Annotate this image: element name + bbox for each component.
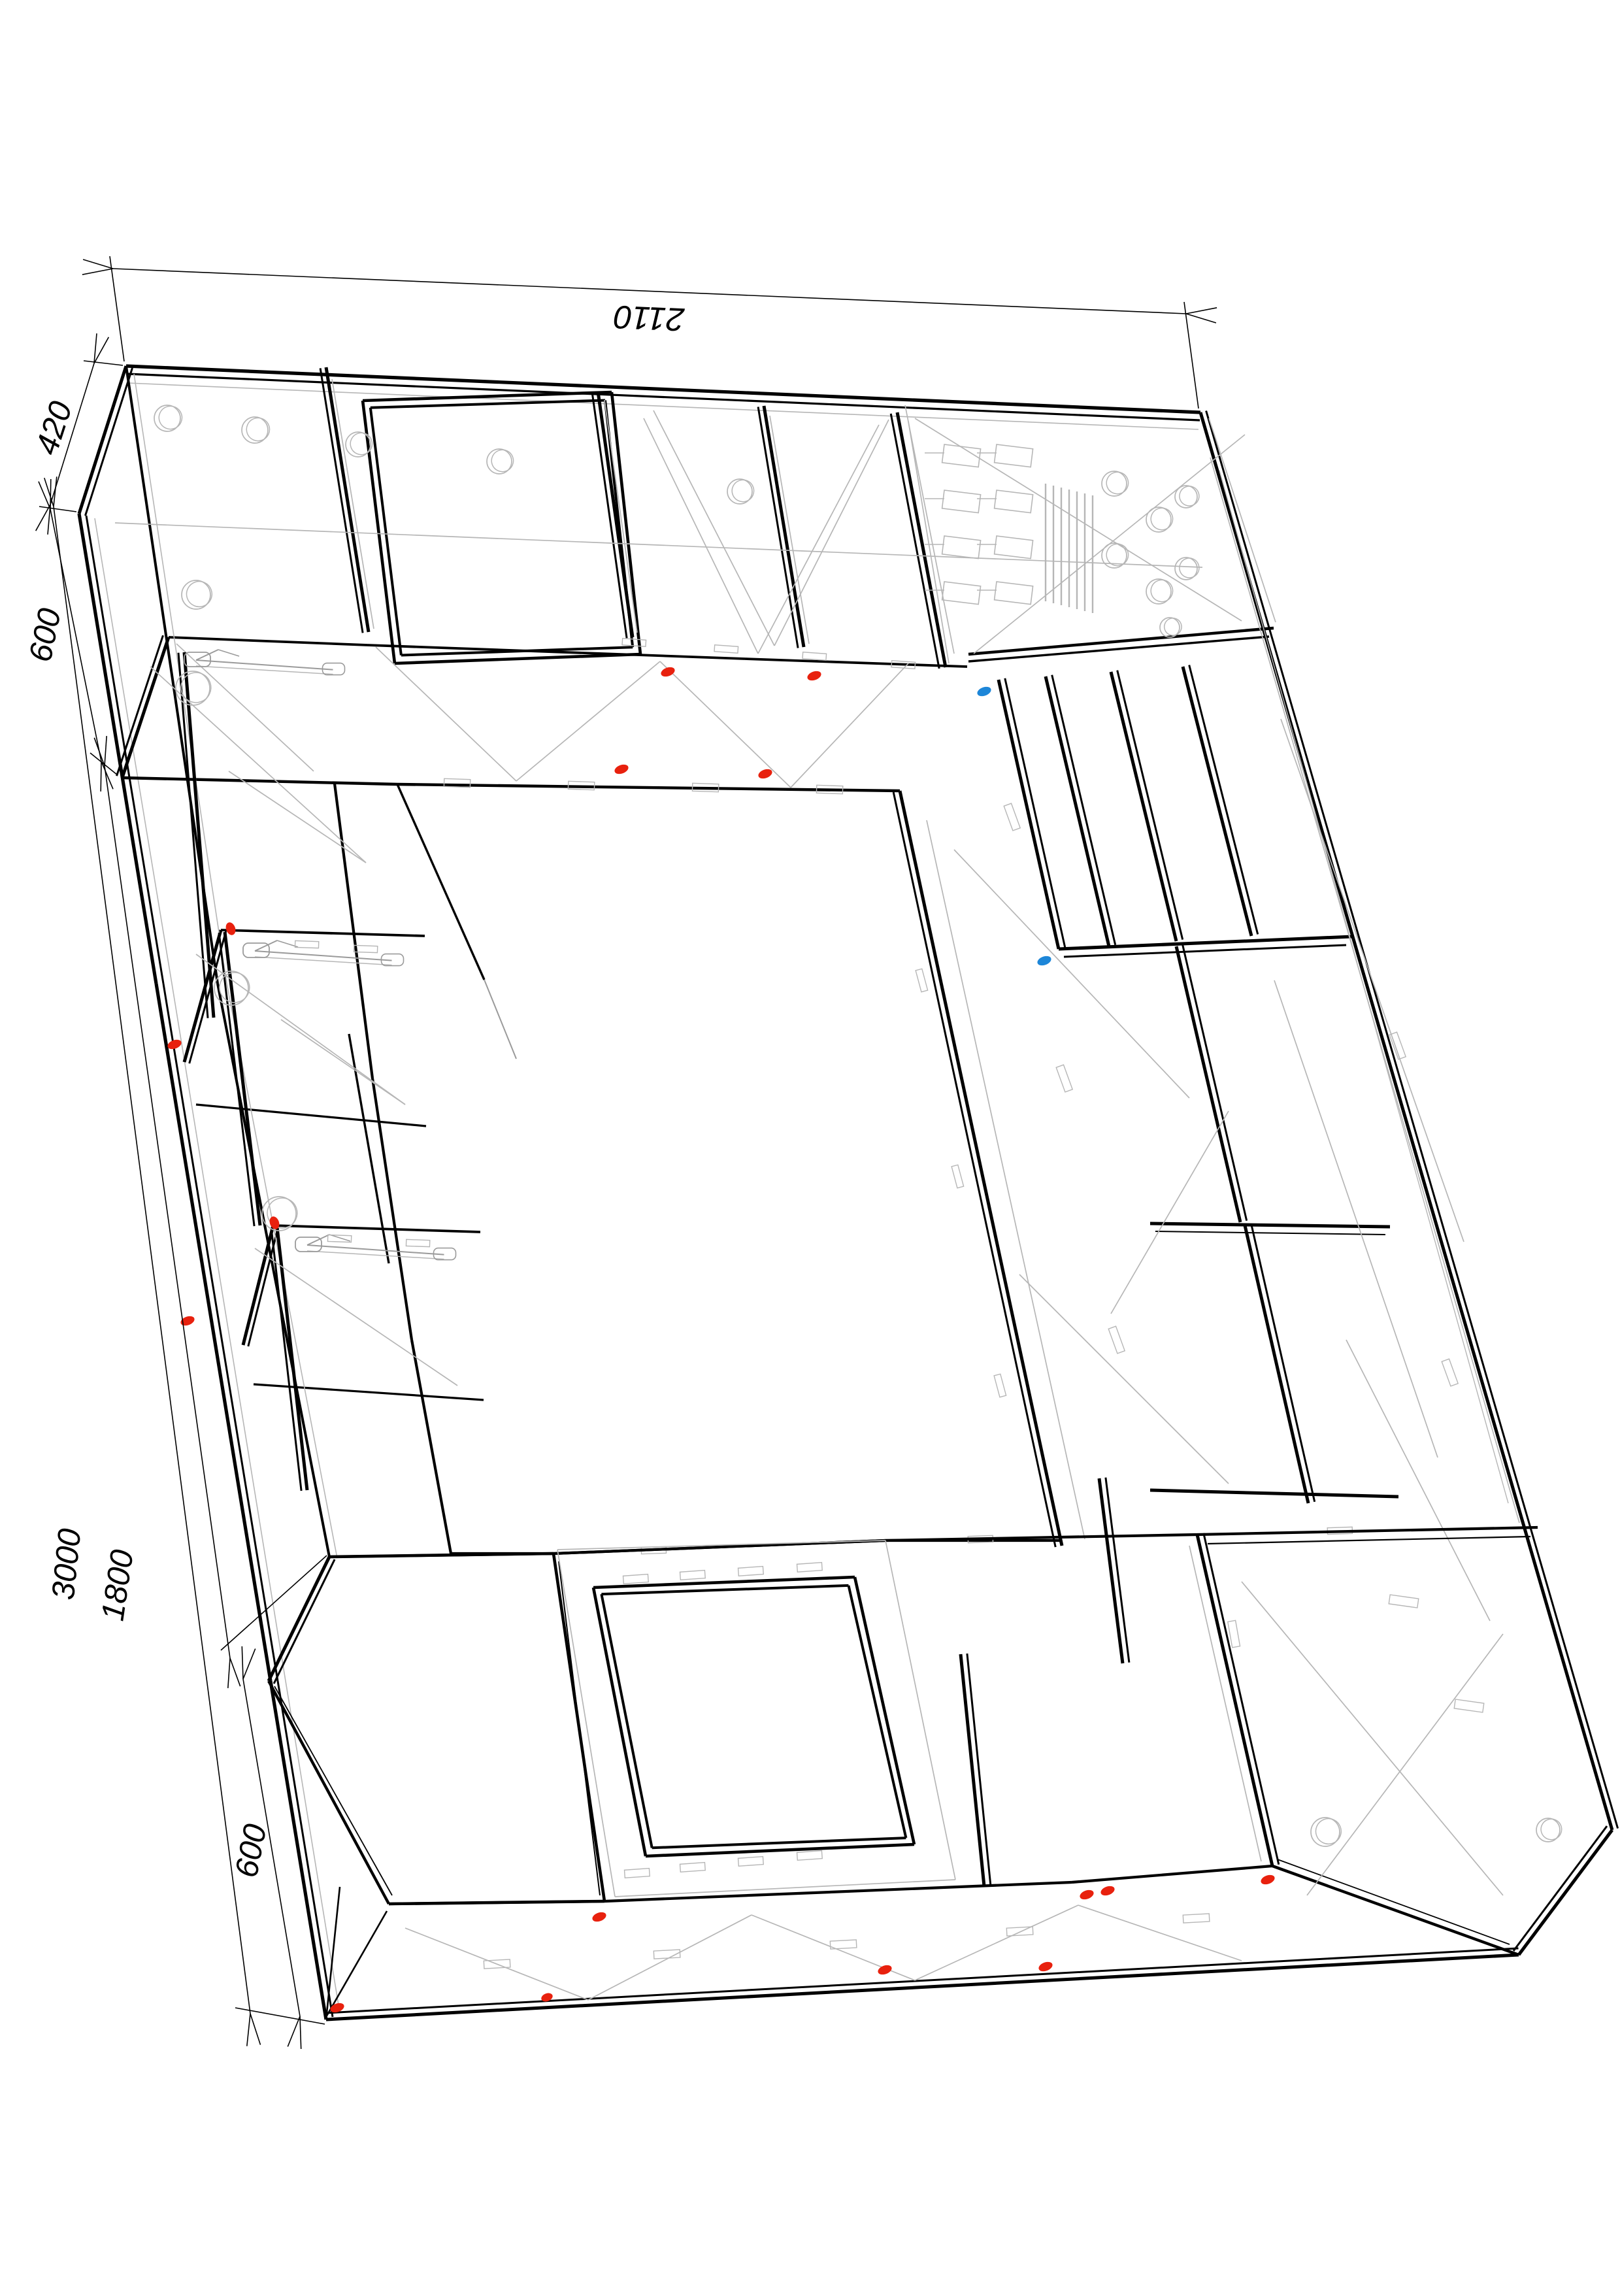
svg-text:3000: 3000: [46, 1527, 88, 1601]
svg-text:2110: 2110: [613, 299, 686, 339]
